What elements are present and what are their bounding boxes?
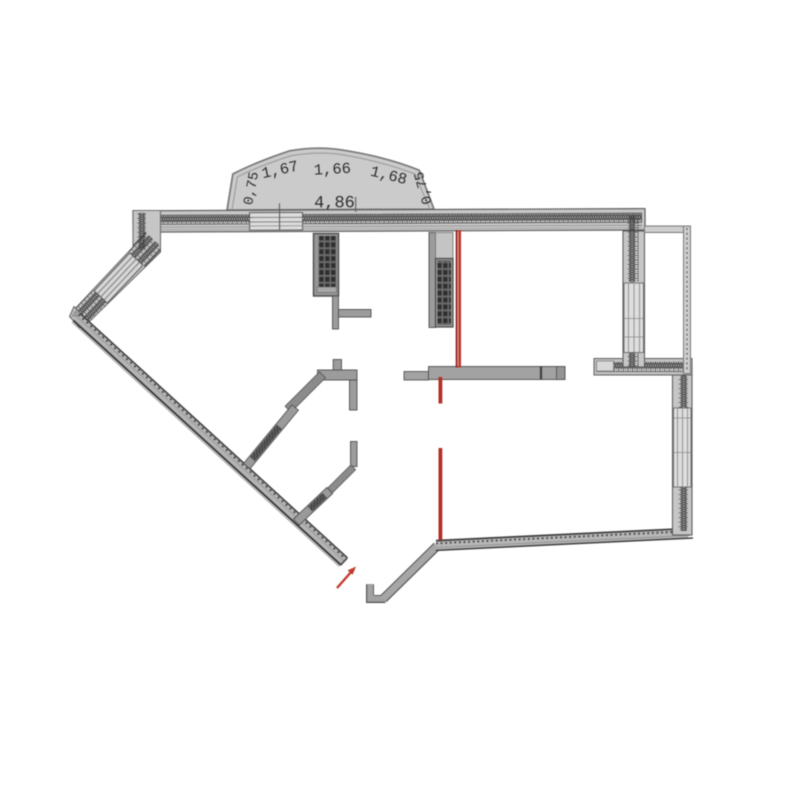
svg-text:1,66: 1,66 [313, 160, 351, 180]
